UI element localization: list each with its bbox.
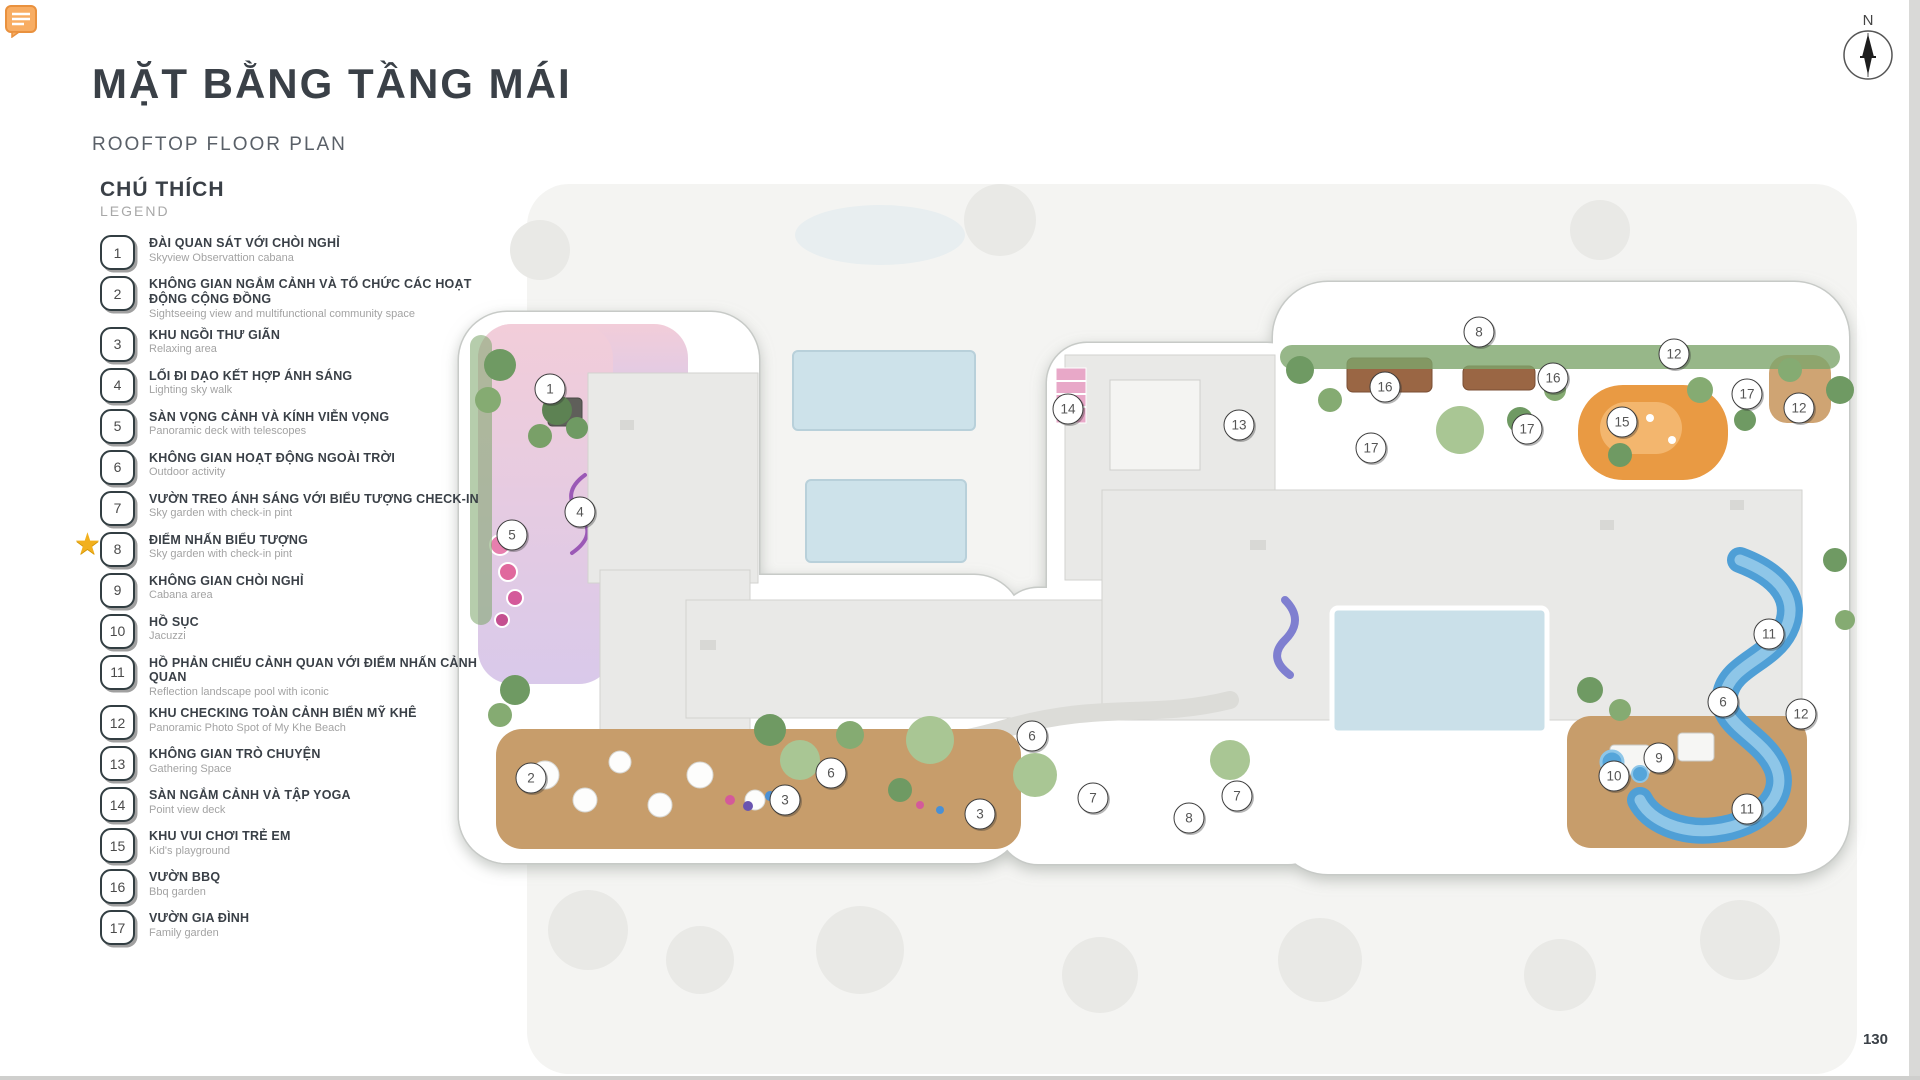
page-number: 130 (1863, 1031, 1888, 1048)
legend-item-2: 2 KHÔNG GIAN NGẮM CẢNH VÀ TỔ CHỨC CÁC HO… (100, 276, 492, 321)
plan-marker-1: 1 (535, 374, 566, 405)
legend-item-title: VƯỜN BBQ (149, 870, 220, 885)
legend-number-badge: 3 (100, 327, 135, 362)
legend-item-title: ĐÀI QUAN SÁT VỚI CHÒI NGHỈ (149, 236, 340, 251)
legend-item-subtitle: Panoramic deck with telescopes (149, 425, 389, 438)
legend-item-9: 9 KHÔNG GIAN CHÒI NGHỈ Cabana area (100, 573, 492, 608)
comment-icon[interactable] (4, 4, 40, 43)
legend-item-7: 7 VƯỜN TREO ÁNH SÁNG VỚI BIỂU TƯỢNG CHEC… (100, 491, 492, 526)
plan-marker-8: 8 (1464, 317, 1495, 348)
plan-marker-12: 12 (1659, 339, 1690, 370)
plan-marker-9: 9 (1644, 743, 1675, 774)
legend-item-subtitle: Point view deck (149, 804, 351, 817)
plan-marker-12: 12 (1784, 393, 1815, 424)
page-subtitle: ROOFTOP FLOOR PLAN (92, 134, 572, 156)
legend-number-badge: 5 (100, 409, 135, 444)
legend-item-8: 8 ĐIỂM NHẤN BIỂU TƯỢNG Sky garden with c… (100, 532, 492, 567)
legend-number-badge: 16 (100, 869, 135, 904)
legend-item-5: 5 SÀN VỌNG CẢNH VÀ KÍNH VIỄN VỌNG Panora… (100, 409, 492, 444)
legend-item-subtitle: Skyview Observattion cabana (149, 252, 340, 265)
plan-marker-11: 11 (1732, 794, 1763, 825)
legend-item-17: 17 VƯỜN GIA ĐÌNH Family garden (100, 910, 492, 945)
legend-item-10: 10 HỒ SỤC Jacuzzi (100, 614, 492, 649)
legend-item-subtitle: Outdoor activity (149, 466, 395, 479)
legend-item-title: KHU VUI CHƠI TRẺ EM (149, 829, 291, 844)
plan-marker-6: 6 (1708, 687, 1739, 718)
legend-list: 1 ĐÀI QUAN SÁT VỚI CHÒI NGHỈ Skyview Obs… (100, 235, 492, 945)
legend-item-title: KHÔNG GIAN NGẮM CẢNH VÀ TỔ CHỨC CÁC HOẠT… (149, 277, 489, 307)
legend-item-title: KHU CHECKING TOÀN CẢNH BIỂN MỸ KHÊ (149, 706, 417, 721)
header: MẶT BẰNG TẦNG MÁI ROOFTOP FLOOR PLAN (92, 60, 572, 156)
legend-item-subtitle: Sightseeing view and multifunctional com… (149, 308, 489, 321)
plan-marker-14: 14 (1053, 394, 1084, 425)
legend-item-title: KHÔNG GIAN HOẠT ĐỘNG NGOÀI TRỜI (149, 451, 395, 466)
legend-item-title: SÀN NGẮM CẢNH VÀ TẬP YOGA (149, 788, 351, 803)
plan-marker-17: 17 (1732, 379, 1763, 410)
legend-item-title: HỒ PHẢN CHIẾU CẢNH QUAN VỚI ĐIỂM NHẤN CẢ… (149, 656, 489, 686)
plan-marker-8: 8 (1174, 803, 1205, 834)
plan-marker-4: 4 (565, 497, 596, 528)
legend-item-subtitle: Jacuzzi (149, 630, 199, 643)
legend-number-badge: 14 (100, 787, 135, 822)
legend-item-title: VƯỜN GIA ĐÌNH (149, 911, 249, 926)
legend-number-badge: 15 (100, 828, 135, 863)
plan-marker-13: 13 (1224, 410, 1255, 441)
legend-number-badge: 7 (100, 491, 135, 526)
plan-marker-16: 16 (1370, 372, 1401, 403)
legend-title: CHÚ THÍCH (100, 178, 492, 202)
plan-marker-7: 7 (1078, 783, 1109, 814)
legend-number-badge: 17 (100, 910, 135, 945)
legend-number-badge: 1 (100, 235, 135, 270)
legend-number-badge: 13 (100, 746, 135, 781)
plan-marker-16: 16 (1538, 363, 1569, 394)
legend-item-subtitle: Kid's playground (149, 845, 291, 858)
legend-subtitle: LEGEND (100, 203, 492, 219)
legend-item-subtitle: Lighting sky walk (149, 384, 352, 397)
legend-item-16: 16 VƯỜN BBQ Bbq garden (100, 869, 492, 904)
legend-item-title: KHÔNG GIAN CHÒI NGHỈ (149, 574, 304, 589)
legend-number-badge: 10 (100, 614, 135, 649)
legend-item-title: SÀN VỌNG CẢNH VÀ KÍNH VIỄN VỌNG (149, 410, 389, 425)
legend-number-badge: 4 (100, 368, 135, 403)
plan-marker-6: 6 (1017, 721, 1048, 752)
legend-item-title: ĐIỂM NHẤN BIỂU TƯỢNG (149, 533, 308, 548)
legend-item-subtitle: Panoramic Photo Spot of My Khe Beach (149, 722, 417, 735)
plan-marker-7: 7 (1222, 781, 1253, 812)
legend: CHÚ THÍCH LEGEND 1 ĐÀI QUAN SÁT VỚI CHÒI… (100, 178, 492, 951)
plan-marker-2: 2 (516, 763, 547, 794)
legend-item-15: 15 KHU VUI CHƠI TRẺ EM Kid's playground (100, 828, 492, 863)
legend-item-title: VƯỜN TREO ÁNH SÁNG VỚI BIỂU TƯỢNG CHECK-… (149, 492, 479, 507)
plan-marker-3: 3 (770, 785, 801, 816)
legend-item-title: HỒ SỤC (149, 615, 199, 630)
legend-item-14: 14 SÀN NGẮM CẢNH VÀ TẬP YOGA Point view … (100, 787, 492, 822)
legend-number-badge: 11 (100, 655, 135, 690)
legend-item-subtitle: Relaxing area (149, 343, 280, 356)
plan-marker-15: 15 (1607, 407, 1638, 438)
legend-item-6: 6 KHÔNG GIAN HOẠT ĐỘNG NGOÀI TRỜI Outdoo… (100, 450, 492, 485)
legend-item-1: 1 ĐÀI QUAN SÁT VỚI CHÒI NGHỈ Skyview Obs… (100, 235, 492, 270)
legend-item-3: 3 KHU NGỒI THƯ GIÃN Relaxing area (100, 327, 492, 362)
legend-item-11: 11 HỒ PHẢN CHIẾU CẢNH QUAN VỚI ĐIỂM NHẤN… (100, 655, 492, 700)
legend-item-subtitle: Gathering Space (149, 763, 321, 776)
legend-item-title: KHU NGỒI THƯ GIÃN (149, 328, 280, 343)
plan-marker-10: 10 (1599, 761, 1630, 792)
plan-marker-17: 17 (1512, 414, 1543, 445)
plan-marker-11: 11 (1754, 619, 1785, 650)
plan-marker-3: 3 (965, 799, 996, 830)
page-title: MẶT BẰNG TẦNG MÁI (92, 60, 572, 108)
legend-number-badge: 8 (100, 532, 135, 567)
plan-marker-5: 5 (497, 520, 528, 551)
legend-item-subtitle: Sky garden with check-in pint (149, 507, 479, 520)
legend-item-subtitle: Reflection landscape pool with iconic (149, 686, 489, 699)
legend-number-badge: 12 (100, 705, 135, 740)
legend-item-4: 4 LỐI ĐI DẠO KẾT HỢP ÁNH SÁNG Lighting s… (100, 368, 492, 403)
legend-item-title: LỐI ĐI DẠO KẾT HỢP ÁNH SÁNG (149, 369, 352, 384)
legend-item-12: 12 KHU CHECKING TOÀN CẢNH BIỂN MỸ KHÊ Pa… (100, 705, 492, 740)
legend-number-badge: 9 (100, 573, 135, 608)
legend-item-title: KHÔNG GIAN TRÒ CHUYỆN (149, 747, 321, 762)
legend-number-badge: 6 (100, 450, 135, 485)
legend-item-subtitle: Sky garden with check-in pint (149, 548, 308, 561)
legend-number-badge: 2 (100, 276, 135, 311)
legend-item-subtitle: Cabana area (149, 589, 304, 602)
legend-item-13: 13 KHÔNG GIAN TRÒ CHUYỆN Gathering Space (100, 746, 492, 781)
plan-marker-6: 6 (816, 758, 847, 789)
legend-item-subtitle: Bbq garden (149, 886, 220, 899)
plan-marker-12: 12 (1786, 699, 1817, 730)
legend-item-subtitle: Family garden (149, 927, 249, 940)
plan-marker-17: 17 (1356, 433, 1387, 464)
